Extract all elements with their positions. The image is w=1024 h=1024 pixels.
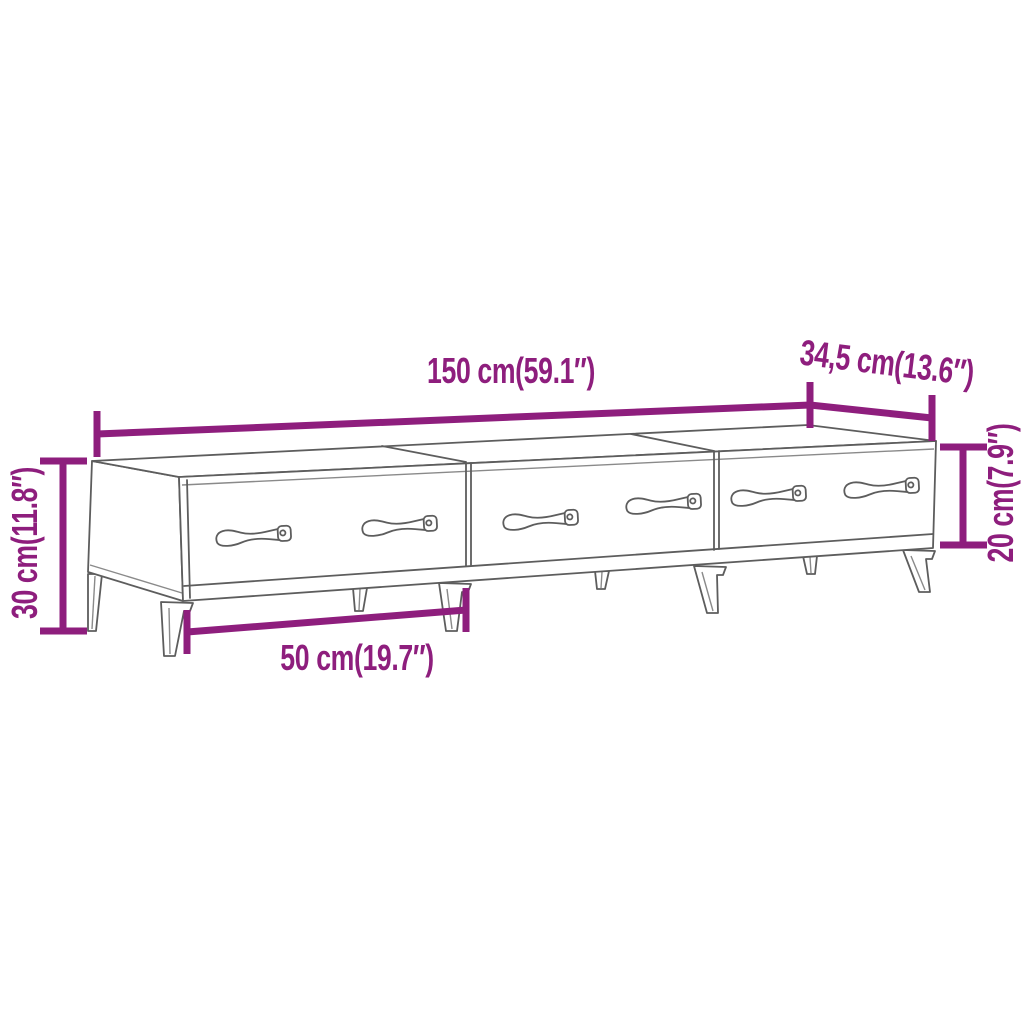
cabinet-line-drawing xyxy=(0,0,1024,1024)
dim-depth-line xyxy=(810,405,932,418)
dim-drawer-width-label: 50 cm(19.7″) xyxy=(280,637,433,679)
dim-total-height-label: 30 cm(11.8″) xyxy=(4,467,46,619)
dim-body-height-label: 20 cm(7.9″) xyxy=(980,423,1022,562)
front-leg xyxy=(694,566,726,613)
dim-drawer-width-line xyxy=(187,610,466,632)
front-leg xyxy=(903,550,935,592)
back-leg-facet-line xyxy=(601,572,602,588)
dim-width-label: 150 cm(59.1″) xyxy=(427,350,595,392)
back-leg-facet-line xyxy=(359,589,360,610)
front-leg-facet-line xyxy=(169,608,170,654)
dimension-total-height-30 xyxy=(40,461,87,631)
back-leg-facet-line xyxy=(810,557,811,573)
product-dimension-diagram: 150 cm(59.1″) 34,5 cm(13.6″) 20 cm(7.9″)… xyxy=(0,0,1024,1024)
